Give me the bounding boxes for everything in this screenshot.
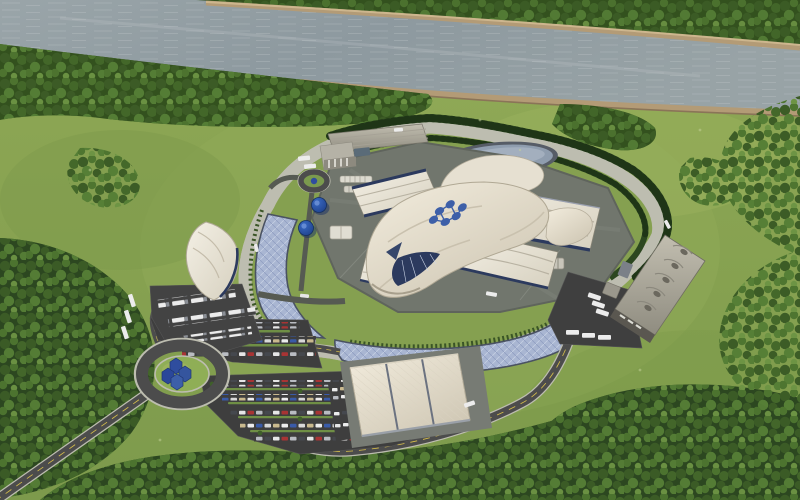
- small-roundabout: [298, 170, 330, 193]
- rendering-canvas: [0, 0, 800, 500]
- plant-aerial-rendering: [0, 0, 800, 500]
